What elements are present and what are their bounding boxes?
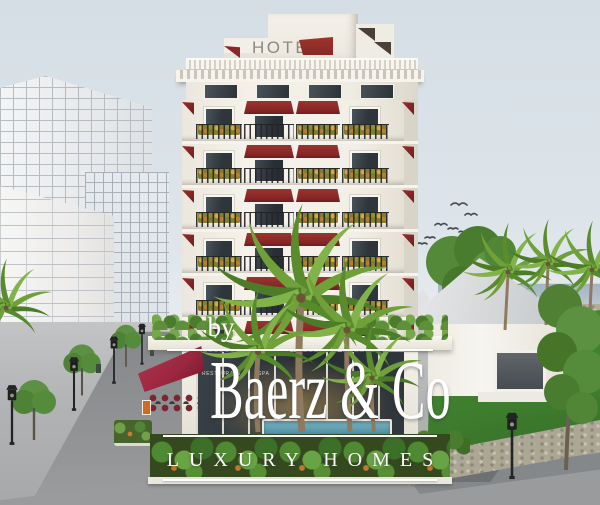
architectural-rendering: HOTEL	[0, 0, 600, 505]
foreground-palms	[0, 0, 600, 505]
